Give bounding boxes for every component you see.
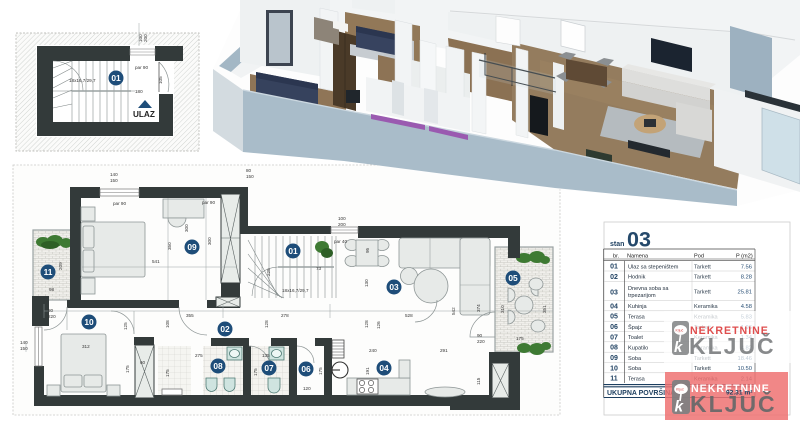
svg-text:07: 07: [264, 363, 274, 373]
svg-text:Kupatilo: Kupatilo: [628, 346, 648, 352]
svg-text:KLJUČ: KLJUČ: [689, 332, 776, 359]
svg-text:191: 191: [365, 367, 370, 375]
svg-text:8.28: 8.28: [741, 275, 752, 281]
svg-text:4.58: 4.58: [741, 304, 752, 310]
svg-text:Tarkett: Tarkett: [694, 275, 711, 281]
svg-text:18x16,7/29,7: 18x16,7/29,7: [282, 288, 309, 293]
svg-text:312: 312: [82, 344, 90, 349]
svg-text:7.56: 7.56: [741, 264, 752, 270]
svg-text:100: 100: [338, 216, 346, 221]
svg-text:528: 528: [405, 313, 413, 318]
svg-text:Tarkett: Tarkett: [694, 290, 711, 296]
svg-text:355: 355: [186, 313, 194, 318]
svg-text:03: 03: [610, 290, 618, 297]
svg-text:03: 03: [627, 228, 651, 252]
svg-text:300: 300: [207, 237, 212, 245]
svg-text:04: 04: [610, 303, 618, 310]
svg-text:542: 542: [451, 307, 456, 315]
svg-text:180: 180: [135, 89, 143, 94]
svg-text:02: 02: [220, 324, 230, 334]
svg-text:par 90: par 90: [113, 201, 126, 206]
svg-text:k: k: [674, 339, 683, 356]
svg-text:175: 175: [516, 336, 524, 341]
svg-text:Soba: Soba: [628, 356, 642, 362]
svg-text:310: 310: [500, 305, 505, 313]
svg-text:225: 225: [266, 268, 271, 276]
svg-text:18x16,7/29,7: 18x16,7/29,7: [69, 78, 96, 83]
svg-text:10: 10: [84, 317, 94, 327]
svg-text:Ključ: Ključ: [676, 329, 684, 333]
svg-text:Špajz: Špajz: [628, 324, 642, 331]
svg-text:Tarkett: Tarkett: [694, 264, 711, 270]
svg-text:175: 175: [165, 369, 170, 377]
svg-text:UKUPNA POVRŠINA: UKUPNA POVRŠINA: [607, 388, 675, 397]
svg-text:73: 73: [316, 266, 322, 271]
svg-text:09: 09: [610, 355, 618, 362]
svg-text:Dnevna soba sa: Dnevna soba sa: [628, 286, 669, 292]
svg-text:Terasa: Terasa: [628, 377, 646, 383]
svg-text:80: 80: [246, 168, 252, 173]
svg-text:10.50: 10.50: [737, 366, 752, 372]
svg-text:175: 175: [125, 365, 130, 373]
svg-text:120: 120: [303, 386, 311, 391]
svg-text:05: 05: [610, 314, 618, 321]
svg-text:06: 06: [301, 364, 311, 374]
svg-text:130: 130: [364, 279, 369, 287]
svg-text:02: 02: [610, 274, 618, 281]
svg-text:11: 11: [44, 267, 53, 277]
svg-text:25.81: 25.81: [737, 290, 752, 296]
svg-text:01: 01: [610, 264, 618, 271]
svg-text:350: 350: [167, 242, 172, 250]
svg-text:11: 11: [610, 376, 618, 383]
svg-text:150: 150: [110, 178, 118, 183]
svg-text:128: 128: [364, 320, 369, 328]
svg-text:541: 541: [152, 259, 160, 264]
svg-text:10: 10: [610, 365, 618, 372]
svg-text:Kuhinja: Kuhinja: [628, 304, 648, 310]
svg-text:278: 278: [281, 313, 289, 318]
svg-text:Keramika: Keramika: [694, 304, 719, 310]
svg-text:Namena: Namena: [627, 254, 649, 260]
svg-text:stan: stan: [610, 241, 624, 248]
svg-text:175: 175: [253, 368, 258, 376]
svg-text:04: 04: [379, 363, 389, 373]
svg-text:P (m2): P (m2): [736, 254, 753, 260]
svg-text:Tarkett: Tarkett: [694, 366, 711, 372]
svg-text:Pod: Pod: [694, 254, 704, 260]
svg-text:351: 351: [542, 305, 547, 313]
svg-text:220: 220: [477, 339, 485, 344]
svg-text:Ulaz sa stepeništem: Ulaz sa stepeništem: [628, 264, 679, 270]
svg-text:275: 275: [195, 353, 203, 358]
svg-text:374: 374: [476, 304, 481, 312]
svg-text:08: 08: [610, 345, 618, 352]
svg-text:220: 220: [48, 314, 56, 319]
svg-text:125: 125: [123, 322, 128, 330]
svg-text:Toalet: Toalet: [628, 335, 643, 341]
svg-text:126: 126: [376, 321, 381, 329]
svg-text:Terasa: Terasa: [628, 315, 646, 321]
svg-text:Hodnik: Hodnik: [628, 275, 646, 281]
svg-text:115: 115: [476, 377, 481, 385]
svg-text:60: 60: [140, 360, 146, 365]
svg-text:291: 291: [440, 348, 448, 353]
svg-text:108: 108: [165, 320, 170, 328]
svg-text:200: 200: [143, 34, 148, 42]
svg-text:trpezarijom: trpezarijom: [628, 293, 656, 299]
svg-text:128: 128: [264, 320, 269, 328]
svg-text:95: 95: [365, 247, 370, 253]
svg-text:01: 01: [111, 73, 121, 83]
svg-text:140: 140: [110, 172, 118, 177]
svg-text:03: 03: [389, 282, 399, 292]
svg-text:05: 05: [508, 273, 518, 283]
svg-text:300: 300: [184, 224, 189, 232]
svg-text:150: 150: [246, 174, 254, 179]
svg-text:80: 80: [48, 308, 54, 313]
svg-text:09: 09: [187, 242, 197, 252]
svg-text:90: 90: [477, 333, 483, 338]
svg-text:Soba: Soba: [628, 366, 642, 372]
svg-text:06: 06: [610, 324, 618, 331]
svg-text:par 90: par 90: [135, 65, 148, 70]
svg-text:k: k: [675, 399, 685, 416]
svg-text:150: 150: [20, 346, 28, 351]
svg-text:135: 135: [262, 353, 270, 358]
svg-text:98: 98: [49, 287, 55, 292]
svg-text:par 90: par 90: [202, 200, 215, 205]
svg-text:07: 07: [610, 334, 618, 341]
svg-text:209: 209: [58, 262, 63, 270]
svg-text:175: 175: [318, 367, 323, 375]
svg-text:01: 01: [288, 246, 298, 256]
svg-text:par 40: par 40: [334, 239, 347, 244]
svg-text:200: 200: [338, 222, 346, 227]
svg-text:105: 105: [158, 76, 163, 84]
svg-text:240: 240: [369, 348, 377, 353]
svg-text:ULAZ: ULAZ: [133, 110, 155, 119]
svg-text:92.31 m²: 92.31 m²: [726, 390, 753, 397]
svg-text:br.: br.: [613, 254, 620, 260]
svg-text:Ključ: Ključ: [676, 388, 684, 392]
svg-text:140: 140: [20, 340, 28, 345]
svg-text:08: 08: [213, 361, 223, 371]
